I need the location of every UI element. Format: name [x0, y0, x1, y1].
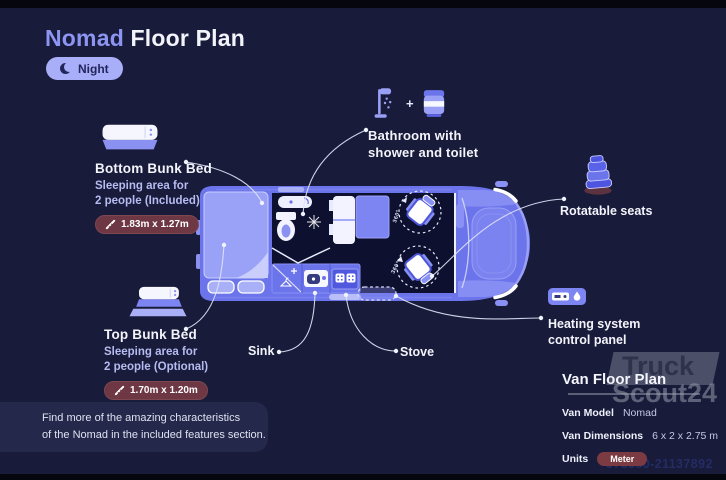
- footer-note: Find more of the amazing characteristics…: [0, 402, 268, 452]
- bathroom-sink: [278, 196, 312, 208]
- van-info-title: Van Floor Plan: [562, 371, 724, 388]
- stove-label: Stove: [400, 345, 434, 359]
- van-model-label: Van Model: [562, 407, 614, 419]
- bunk-bed-icon: [95, 120, 165, 156]
- seat-icon: [576, 154, 620, 196]
- heating-panel-location: [358, 287, 396, 300]
- top-bunk-dimensions-badge: 1.70m x 1.20m: [104, 381, 208, 400]
- plus-joiner: +: [406, 96, 414, 111]
- heating-panel-icon: [548, 288, 586, 305]
- bunk-bed-stacked-icon: [126, 284, 190, 322]
- roof-vent: [278, 187, 304, 192]
- units-label: Units: [562, 453, 588, 465]
- moon-icon: [60, 63, 71, 74]
- bottom-bunk-title: Bottom Bunk Bed: [95, 161, 265, 176]
- hood: [472, 208, 516, 279]
- ruler-icon: [114, 385, 125, 396]
- heating-label: Heating system control panel: [548, 316, 688, 349]
- annotation-bathroom: + Bathroom with shower and toilet: [368, 85, 508, 162]
- annotation-top-bunk: Top Bunk Bed Sleeping area for 2 people …: [104, 284, 274, 401]
- shower-sparkle: [307, 215, 321, 229]
- page-title-brand: Nomad: [45, 25, 124, 51]
- sink-label: Sink: [248, 344, 274, 358]
- footer-note-line1: Find more of the amazing characteristics: [42, 410, 268, 427]
- van-info-panel: Van Floor Plan Van Model Nomad Van Dimen…: [562, 371, 724, 474]
- bottom-letterbox-bar: [0, 474, 726, 480]
- bathroom-label: Bathroom with shower and toilet: [368, 128, 508, 162]
- page-title-rest: Floor Plan: [131, 25, 245, 51]
- toilet-tank: [276, 212, 296, 220]
- side-mirror-top: [495, 181, 508, 187]
- van-dimensions-row: Van Dimensions 6 x 2 x 2.75 m: [562, 428, 724, 443]
- van-model-value: Nomad: [623, 407, 657, 419]
- footer-note-line2: of the Nomad in the included features se…: [42, 427, 268, 444]
- shower-icon: [372, 85, 398, 121]
- units-meter-badge[interactable]: Meter: [597, 452, 647, 466]
- top-bunk-title: Top Bunk Bed: [104, 327, 274, 342]
- van-dimensions-value: 6 x 2 x 2.75 m: [652, 430, 718, 442]
- night-mode-label: Night: [78, 62, 109, 76]
- page-title: Nomad Floor Plan: [45, 25, 245, 52]
- floor-plan-page: Nomad Floor Plan Night: [0, 0, 726, 480]
- annotation-heating: Heating system control panel: [548, 288, 688, 349]
- dinette-table: [356, 196, 389, 238]
- dinette: [329, 196, 389, 244]
- entry-step: [329, 294, 361, 300]
- van-dimensions-label: Van Dimensions: [562, 430, 643, 442]
- toilet-icon: [422, 88, 446, 118]
- side-mirror-bottom: [495, 300, 508, 306]
- rotatable-seats-label: Rotatable seats: [560, 204, 710, 218]
- bottom-bunk-description: Sleeping area for 2 people (Included): [95, 179, 265, 208]
- ruler-icon: [105, 219, 116, 230]
- bottom-bunk-dimensions-badge: 1.83m x 1.27m: [95, 215, 199, 234]
- annotation-bottom-bunk: Bottom Bunk Bed Sleeping area for 2 peop…: [95, 120, 265, 235]
- top-letterbox-bar: [0, 0, 726, 8]
- units-row: Units Meter: [562, 451, 724, 466]
- night-mode-toggle[interactable]: Night: [46, 57, 123, 80]
- annotation-rotatable-seats: Rotatable seats: [560, 154, 710, 218]
- van-model-row: Van Model Nomad: [562, 405, 724, 420]
- steering-wheel: [456, 204, 464, 228]
